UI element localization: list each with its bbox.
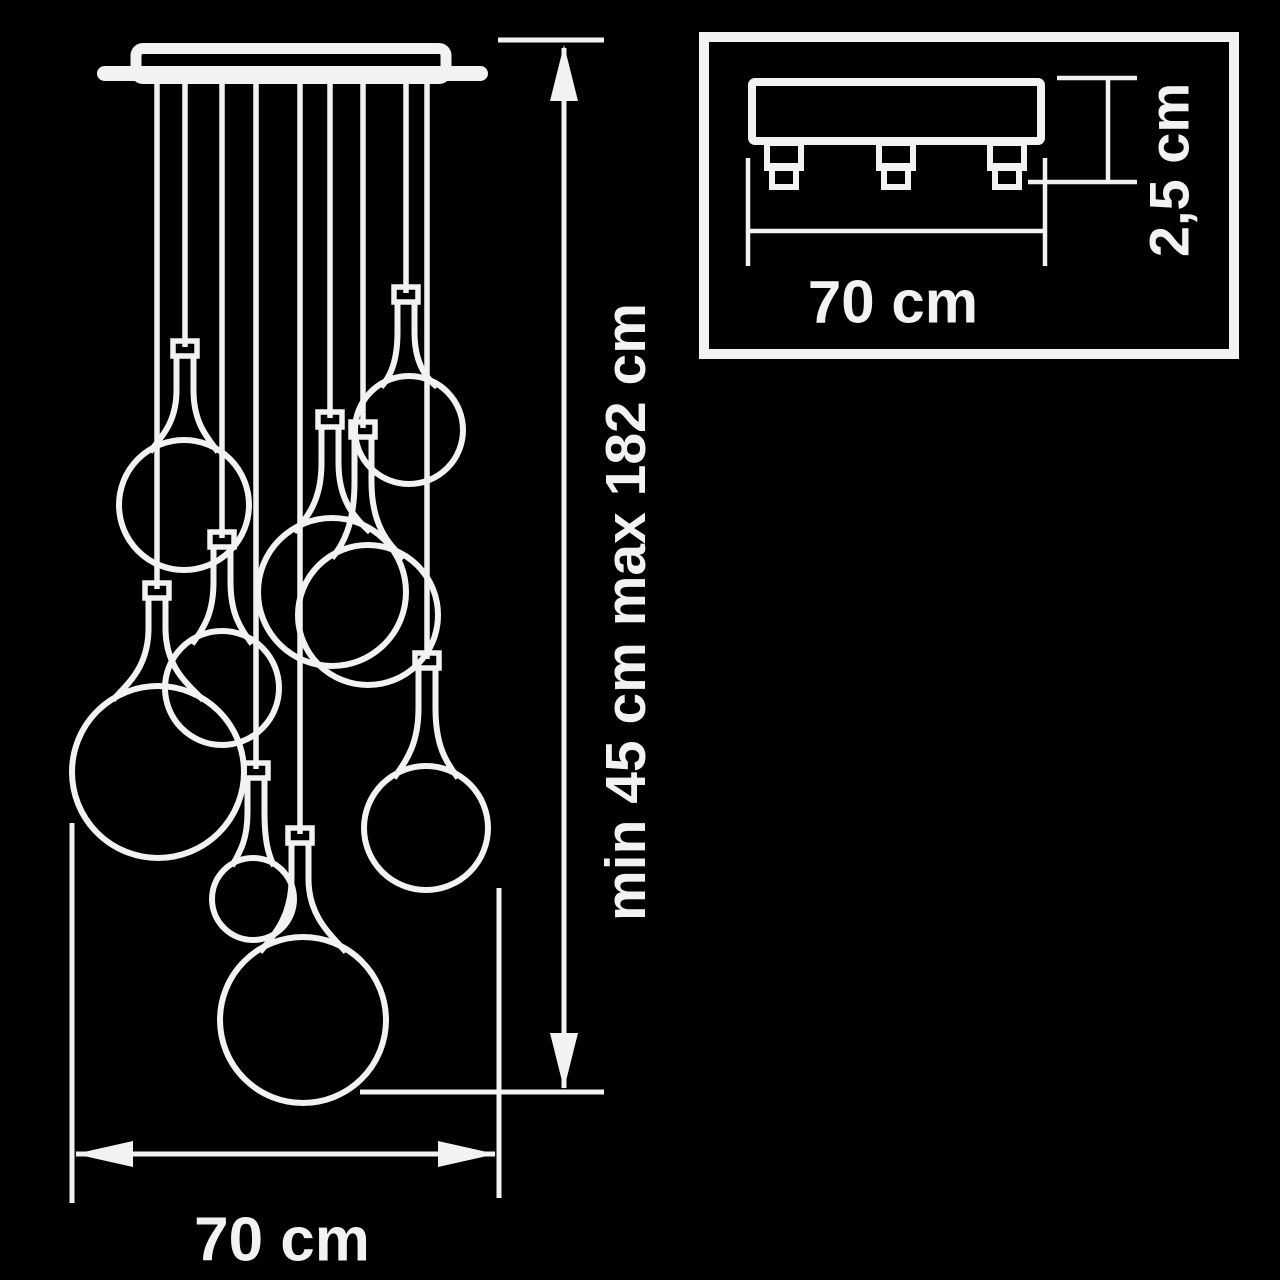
pendant-globe (364, 766, 488, 890)
pendant-bottom-big (220, 828, 386, 1103)
arrowhead-left (75, 1141, 133, 1167)
ceiling-plate-inset: 70 cm 2,5 cm (704, 37, 1234, 354)
cord-connector (990, 143, 1024, 187)
pendant-center-big (258, 412, 406, 666)
pendant-right (364, 653, 488, 890)
pendant-big-left (72, 583, 244, 858)
pendant-cords (157, 80, 427, 834)
pendant-globe (119, 440, 249, 570)
cord-connector (767, 143, 801, 187)
height-dimension-label: min 45 cm max 182 cm (594, 303, 658, 921)
inset-width-dimension-label: 70 cm (808, 269, 978, 336)
pendant-globe (258, 518, 406, 666)
inset-height-dimension-label: 2,5 cm (1138, 83, 1201, 257)
arrowhead-down (550, 1033, 578, 1089)
cord-connectors (767, 143, 1024, 187)
inset-height-dimension: 2,5 cm (1028, 78, 1201, 257)
cord-connector (879, 143, 913, 187)
mount-plate (752, 82, 1041, 141)
pendant-globe (72, 686, 244, 858)
main-chandelier-view: min 45 cm max 182 cm 70 cm (72, 40, 658, 1275)
pendant-upper-left (119, 341, 249, 570)
arrowhead-right (438, 1141, 496, 1167)
width-dimension-label: 70 cm (194, 1206, 370, 1275)
pendant-small (212, 763, 294, 940)
technical-drawing-page: min 45 cm max 182 cm 70 cm (0, 0, 1280, 1280)
pendant-globe (220, 937, 386, 1103)
canopy-bar (97, 66, 488, 81)
chandelier-dimension-diagram: min 45 cm max 182 cm 70 cm (0, 0, 1280, 1280)
arrowhead-up (550, 45, 578, 101)
